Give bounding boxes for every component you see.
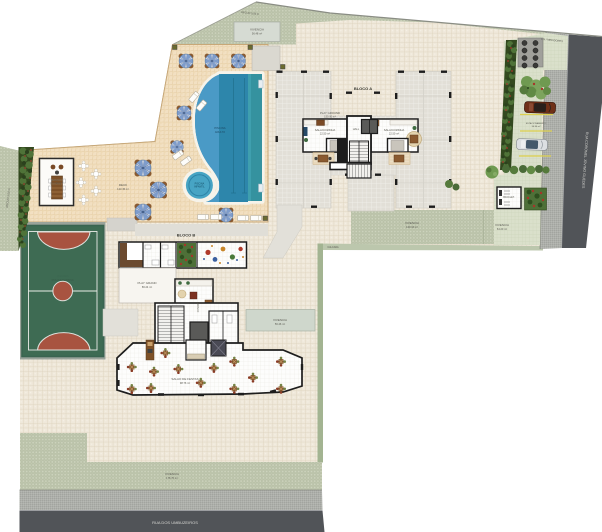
svg-text:VIVENCIA: VIVENCIA [165,472,179,476]
svg-text:GOURMET: GOURMET [50,182,64,186]
svg-text:VIVENCIA: VIVENCIA [250,28,264,32]
svg-text:PLAY GROUND: PLAY GROUND [320,111,340,115]
svg-text:56.48 m²: 56.48 m² [252,32,262,36]
svg-text:64.20 m²: 64.20 m² [497,227,507,231]
svg-text:DECK: DECK [119,183,127,187]
svg-text:SALA/COZINHA: SALA/COZINHA [315,128,336,132]
svg-text:36.90 m²: 36.90 m² [532,125,541,128]
svg-text:POLIESPORTIVA: POLIESPORTIVA [52,278,74,282]
svg-text:VIVENCIA: VIVENCIA [273,318,287,322]
svg-text:VIVENCIA: VIVENCIA [405,221,419,225]
svg-text:ADULTO: ADULTO [215,130,225,134]
svg-text:ESPACO: ESPACO [196,302,200,313]
svg-text:SALAO DE FESTAS: SALAO DE FESTAS [171,377,198,381]
svg-text:BLOCO A: BLOCO A [354,86,372,91]
svg-text:BICICLET.: BICICLET. [503,196,514,199]
svg-text:ESPACO: ESPACO [51,178,62,182]
svg-text:SALA/COZINHA: SALA/COZINHA [384,128,405,132]
svg-text:22.50 m²: 22.50 m² [320,132,330,136]
svg-text:BLOCO B: BLOCO B [177,233,196,238]
svg-text:HALL: HALL [353,127,360,131]
svg-text:150.00 m²: 150.00 m² [324,115,336,119]
svg-text:56.46 m²: 56.46 m² [275,322,285,326]
svg-text:PLAY GRAND: PLAY GRAND [137,281,157,285]
svg-text:178.76 m²: 178.76 m² [166,476,178,480]
svg-text:22.50 m²: 22.50 m² [389,132,399,136]
svg-text:INFANTIL: INFANTIL [194,186,205,189]
svg-text:123.45 m²: 123.45 m² [117,187,129,191]
svg-text:86.24 m²: 86.24 m² [142,285,152,289]
svg-text:ESTACIONAMENTO: ESTACIONAMENTO [526,122,547,125]
svg-text:CALCADA: CALCADA [327,246,339,249]
svg-text:140.16 m²: 140.16 m² [406,225,418,229]
svg-text:98.76 m²: 98.76 m² [180,381,190,385]
svg-text:RUA DOS UMBUZEIROS: RUA DOS UMBUZEIROS [152,520,198,525]
svg-text:PISCINA: PISCINA [214,126,225,130]
svg-text:VIVENCIA: VIVENCIA [495,223,509,227]
